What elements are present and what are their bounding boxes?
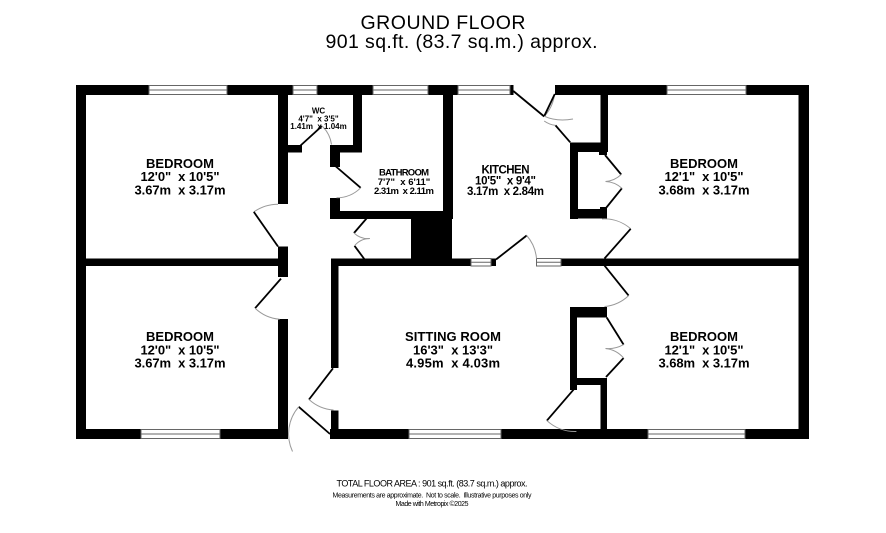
svg-text:4.95m x 4.03m: 4.95m x 4.03m	[406, 356, 500, 371]
svg-text:3.17m x 2.84m: 3.17m x 2.84m	[467, 186, 544, 198]
svg-text:3.68m x 3.17m: 3.68m x 3.17m	[659, 182, 750, 197]
svg-text:3.68m x 3.17m: 3.68m x 3.17m	[659, 356, 750, 371]
svg-text:901 sq.ft. (83.7 sq.m.) approx: 901 sq.ft. (83.7 sq.m.) approx.	[326, 31, 598, 53]
svg-text:3.67m x 3.17m: 3.67m x 3.17m	[135, 356, 226, 371]
svg-text:3.67m x 3.17m: 3.67m x 3.17m	[135, 182, 226, 197]
svg-text:1.41m x 1.04m: 1.41m x 1.04m	[290, 122, 346, 131]
svg-text:2.31m x 2.11m: 2.31m x 2.11m	[374, 186, 434, 197]
svg-text:Made with Metropix ©2025: Made with Metropix ©2025	[396, 500, 469, 508]
svg-text:Measurements are approximate.: Measurements are approximate. Not to sca…	[333, 493, 533, 500]
svg-text:TOTAL FLOOR AREA : 901 sq.ft.: TOTAL FLOOR AREA : 901 sq.ft. (83.7 sq.m…	[337, 479, 528, 489]
